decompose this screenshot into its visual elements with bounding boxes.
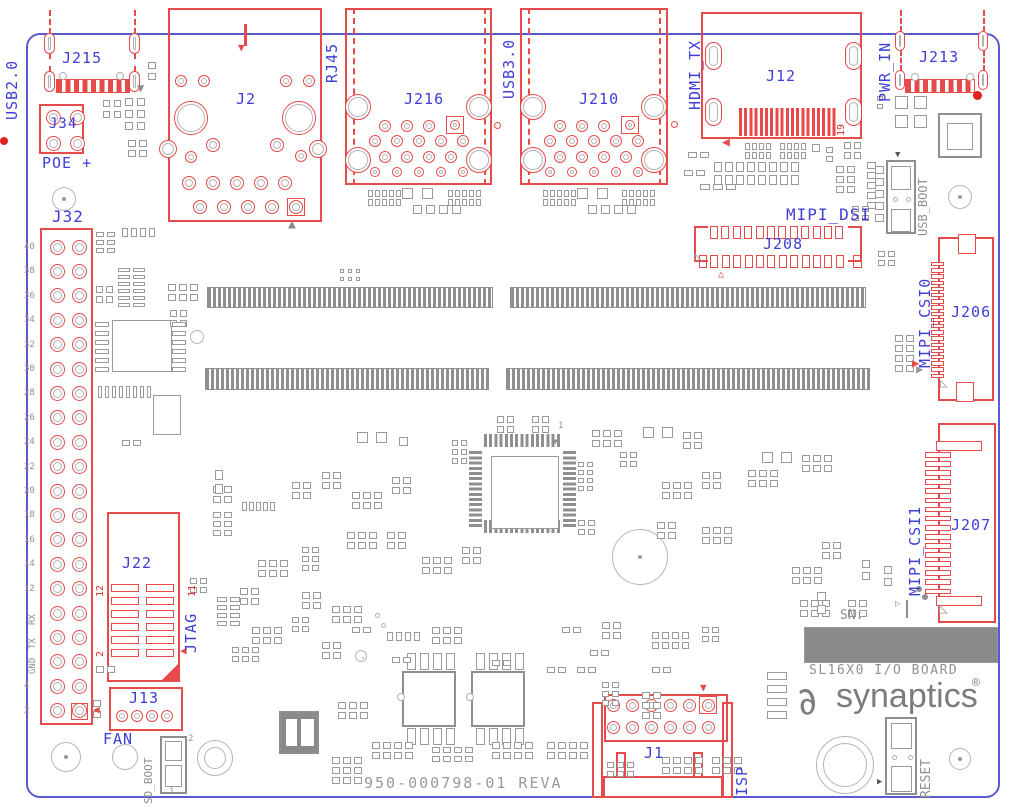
component-footprint bbox=[251, 598, 259, 605]
component-footprint bbox=[333, 482, 341, 489]
j207-pad bbox=[925, 461, 951, 467]
pad-circle bbox=[445, 151, 457, 163]
component-footprint bbox=[252, 647, 259, 653]
component-footprint bbox=[543, 199, 548, 206]
component-footprint bbox=[503, 742, 511, 749]
pad-circle bbox=[50, 654, 65, 669]
component-footprint bbox=[895, 96, 908, 109]
ring bbox=[908, 755, 913, 760]
component-footprint bbox=[578, 470, 584, 475]
component-footprint bbox=[368, 199, 373, 206]
component-footprint bbox=[587, 486, 593, 491]
connector-edge-dashed bbox=[900, 10, 902, 32]
component-footprint bbox=[302, 592, 310, 599]
soic8-chip bbox=[402, 671, 456, 727]
component-footprint bbox=[389, 190, 394, 197]
port-label-jtag: JTAG bbox=[182, 599, 200, 653]
component-footprint bbox=[578, 520, 585, 526]
component-footprint bbox=[895, 345, 903, 352]
component-footprint bbox=[232, 647, 239, 653]
component-footprint bbox=[914, 115, 927, 128]
component-footprint bbox=[333, 642, 341, 649]
pad-circle bbox=[175, 75, 187, 87]
component-footprint bbox=[369, 532, 377, 539]
j207-pad bbox=[925, 543, 951, 549]
component-footprint bbox=[303, 482, 311, 489]
ref-label-j213: J213 bbox=[919, 48, 959, 66]
component-footprint bbox=[862, 572, 870, 580]
component-footprint bbox=[263, 627, 271, 634]
component-footprint bbox=[833, 552, 841, 559]
connector-j32-header[interactable] bbox=[40, 228, 93, 725]
component-footprint bbox=[602, 622, 610, 629]
j22-pad bbox=[111, 597, 139, 605]
component-footprint bbox=[240, 598, 248, 605]
component-footprint bbox=[322, 472, 330, 479]
j206-pad bbox=[931, 367, 944, 371]
component-footprint bbox=[557, 190, 562, 197]
component-footprint bbox=[694, 432, 702, 439]
component-footprint bbox=[340, 269, 344, 273]
component-footprint bbox=[888, 260, 895, 266]
component-footprint bbox=[332, 757, 340, 764]
j208-pad bbox=[710, 226, 718, 239]
component-footprint bbox=[251, 588, 259, 595]
component-footprint bbox=[302, 602, 310, 609]
component-footprint bbox=[854, 142, 861, 149]
component-footprint bbox=[405, 752, 413, 759]
component-footprint bbox=[747, 175, 755, 185]
component-footprint bbox=[137, 110, 145, 118]
component-footprint bbox=[343, 757, 351, 764]
pad-circle bbox=[626, 721, 639, 734]
component-footprint bbox=[597, 188, 608, 199]
component-footprint bbox=[752, 143, 757, 150]
pad-circle bbox=[345, 94, 371, 120]
red-ring bbox=[671, 121, 678, 128]
component-footprint bbox=[394, 752, 402, 759]
component-footprint bbox=[95, 322, 109, 327]
component-footprint bbox=[172, 340, 186, 345]
component-footprint bbox=[792, 577, 800, 584]
component-footprint bbox=[643, 190, 648, 197]
component-footprint bbox=[684, 767, 692, 774]
qfp-pads bbox=[469, 450, 482, 527]
pad-circle bbox=[206, 176, 220, 190]
component-footprint bbox=[602, 691, 609, 697]
component-footprint bbox=[454, 747, 462, 753]
component-footprint bbox=[432, 747, 440, 753]
component-footprint bbox=[780, 143, 785, 150]
component-footprint bbox=[462, 547, 470, 554]
component-footprint bbox=[614, 205, 623, 214]
pad-circle bbox=[545, 167, 555, 177]
component-footprint bbox=[383, 742, 391, 749]
qfp-chip-body bbox=[491, 456, 559, 529]
pad-circle bbox=[566, 135, 578, 147]
pad-circle bbox=[50, 240, 65, 255]
component-footprint bbox=[770, 480, 778, 487]
pad-circle bbox=[379, 151, 391, 163]
j32-pin-label: 26 bbox=[24, 413, 35, 423]
component-footprint bbox=[354, 777, 362, 784]
component-footprint bbox=[801, 152, 806, 159]
component-footprint bbox=[878, 260, 885, 266]
component-footprint bbox=[322, 652, 330, 659]
component-footprint bbox=[452, 458, 458, 464]
component-footprint bbox=[745, 143, 750, 150]
pad-circle bbox=[161, 710, 173, 722]
component-footprint bbox=[200, 587, 207, 593]
j208-pad bbox=[802, 255, 810, 268]
component-footprint bbox=[302, 565, 309, 571]
j207-pad bbox=[925, 498, 951, 504]
pad-circle bbox=[625, 120, 635, 130]
marker-icon: ◀ bbox=[722, 136, 730, 149]
j32-pin-label: 32 bbox=[24, 340, 35, 350]
component-footprint bbox=[673, 482, 681, 489]
component-footprint bbox=[139, 150, 147, 157]
connector-edge-dashed bbox=[900, 50, 902, 71]
component-footprint bbox=[313, 592, 321, 599]
component-footprint bbox=[557, 199, 562, 206]
component-footprint bbox=[713, 537, 721, 544]
component-footprint bbox=[492, 742, 500, 749]
j208-pad bbox=[835, 226, 843, 239]
board-part-number: 950-000798-01 REVA bbox=[364, 774, 563, 792]
j213-pin-row bbox=[905, 79, 975, 93]
component-footprint bbox=[128, 140, 136, 147]
component-footprint bbox=[433, 557, 441, 564]
component-footprint bbox=[139, 140, 147, 147]
j207-pad bbox=[925, 488, 951, 494]
component-footprint bbox=[118, 289, 130, 293]
component-footprint bbox=[759, 143, 764, 150]
pad-circle bbox=[50, 703, 65, 718]
component-footprint bbox=[454, 637, 462, 644]
component-footprint bbox=[392, 477, 400, 484]
component-footprint bbox=[602, 632, 610, 639]
marker-icon: ▲ bbox=[288, 218, 296, 231]
component-footprint bbox=[803, 577, 811, 584]
component-footprint bbox=[332, 767, 340, 774]
j32-pin-label: RX bbox=[28, 603, 38, 625]
component-footprint bbox=[668, 532, 676, 539]
ref-label-j1: J1 bbox=[644, 744, 664, 762]
component-footprint bbox=[683, 432, 691, 439]
component-footprint bbox=[170, 310, 177, 317]
component-footprint bbox=[149, 228, 155, 237]
pcb-silkscreen-drawing: USB2.0 J215 J34 POE + J2 RJ45 J216 USB3.… bbox=[0, 0, 1024, 812]
j32-pin-label: 22 bbox=[24, 462, 35, 472]
pad-circle bbox=[401, 120, 413, 132]
component-footprint bbox=[107, 240, 115, 245]
component-footprint bbox=[392, 487, 400, 494]
ring bbox=[911, 73, 919, 81]
component-footprint bbox=[426, 205, 435, 214]
component-footprint bbox=[688, 152, 697, 158]
component-footprint bbox=[122, 228, 128, 237]
pad-circle bbox=[50, 484, 65, 499]
component-footprint bbox=[128, 150, 136, 157]
component-footprint bbox=[332, 606, 340, 613]
component-footprint bbox=[662, 767, 670, 774]
led-symbol: ▷ bbox=[895, 600, 900, 609]
component-footprint bbox=[769, 175, 777, 185]
j32-pin-label: 14 bbox=[24, 559, 35, 569]
component-footprint bbox=[643, 427, 654, 438]
ring bbox=[375, 613, 380, 618]
j207-pad bbox=[925, 525, 951, 531]
pad-circle bbox=[280, 75, 292, 87]
mounting-hole bbox=[949, 748, 971, 770]
component-footprint bbox=[398, 542, 406, 549]
component-footprint bbox=[629, 190, 634, 197]
soic-pin bbox=[433, 728, 442, 745]
j22-pad bbox=[146, 597, 174, 605]
component-footprint bbox=[862, 560, 870, 568]
j208-pad bbox=[744, 226, 752, 239]
component-footprint bbox=[847, 186, 855, 193]
component-footprint bbox=[213, 512, 221, 518]
pad-circle bbox=[185, 151, 197, 163]
component-footprint bbox=[603, 430, 611, 437]
pad-circle bbox=[50, 679, 65, 694]
pad-circle bbox=[379, 120, 391, 132]
oval-pad bbox=[129, 33, 140, 54]
component-footprint bbox=[712, 757, 720, 764]
component-footprint bbox=[461, 458, 467, 464]
component-footprint bbox=[263, 637, 271, 644]
component-footprint bbox=[413, 205, 422, 214]
component-footprint bbox=[340, 277, 344, 281]
port-label-fan: FAN bbox=[103, 730, 133, 748]
component-footprint bbox=[822, 552, 830, 559]
component-footprint bbox=[547, 667, 555, 673]
component-footprint bbox=[630, 461, 637, 467]
pad-circle bbox=[345, 147, 371, 173]
component-footprint bbox=[352, 627, 360, 633]
component-footprint bbox=[725, 162, 733, 172]
ring bbox=[966, 73, 974, 81]
component-footprint bbox=[822, 542, 830, 549]
pad-circle bbox=[72, 288, 87, 303]
component-footprint bbox=[684, 482, 692, 489]
component-footprint bbox=[133, 440, 141, 446]
j22-pad bbox=[146, 623, 174, 631]
component-footprint bbox=[507, 426, 514, 433]
ring bbox=[381, 623, 386, 628]
pad-circle bbox=[554, 151, 566, 163]
component-footprint bbox=[280, 570, 288, 577]
ref-label-j215: J215 bbox=[62, 49, 102, 67]
pad-circle bbox=[414, 167, 424, 177]
component-footprint bbox=[878, 251, 885, 257]
component-footprint bbox=[612, 691, 619, 697]
component-footprint bbox=[875, 202, 884, 210]
component-footprint bbox=[650, 190, 655, 197]
component-footprint bbox=[569, 752, 577, 759]
component-footprint bbox=[190, 284, 198, 291]
pad-circle bbox=[588, 135, 600, 147]
component-footprint bbox=[497, 426, 504, 433]
switch-label-reset: RESET bbox=[919, 738, 934, 798]
marker-icon: ▼ bbox=[137, 82, 144, 94]
component-footprint bbox=[723, 757, 731, 764]
pin-label-j22-2: 2 bbox=[95, 644, 106, 657]
component-footprint bbox=[578, 529, 585, 535]
pad-circle bbox=[369, 135, 381, 147]
j12-pin-row bbox=[739, 108, 837, 136]
component-footprint bbox=[662, 642, 669, 649]
component-footprint bbox=[96, 248, 104, 253]
component-footprint bbox=[497, 416, 504, 423]
pad-circle bbox=[645, 721, 658, 734]
pad-circle bbox=[50, 435, 65, 450]
component-footprint bbox=[180, 310, 187, 317]
component-footprint bbox=[617, 762, 624, 768]
component-footprint bbox=[672, 642, 679, 649]
component-footprint bbox=[662, 427, 673, 438]
pad-circle bbox=[72, 313, 87, 328]
pad-circle bbox=[436, 167, 446, 177]
component-footprint bbox=[215, 484, 223, 494]
component-footprint bbox=[369, 542, 377, 549]
component-footprint bbox=[758, 175, 766, 185]
pad-circle bbox=[458, 167, 468, 177]
component-footprint bbox=[532, 426, 539, 433]
component-footprint bbox=[673, 767, 681, 774]
pad-circle bbox=[303, 75, 315, 87]
component-footprint bbox=[826, 147, 833, 153]
component-footprint bbox=[240, 588, 248, 595]
component-footprint bbox=[403, 477, 411, 484]
component-footprint bbox=[343, 616, 351, 623]
component-footprint bbox=[444, 567, 452, 574]
pad-circle bbox=[633, 167, 643, 177]
port-label-rj45: RJ45 bbox=[323, 31, 341, 83]
pad-circle bbox=[265, 200, 279, 214]
component-footprint bbox=[382, 190, 387, 197]
pin-label-sd-1: 1 bbox=[169, 787, 174, 797]
j215-pin-row bbox=[56, 79, 130, 93]
component-footprint bbox=[224, 496, 232, 503]
connector-edge-dashed bbox=[134, 10, 136, 34]
component-footprint bbox=[627, 762, 634, 768]
component-footprint bbox=[356, 277, 360, 281]
component-footprint bbox=[767, 672, 787, 680]
component-footprint bbox=[492, 660, 500, 666]
j2-arrow-head: ▼ bbox=[238, 42, 245, 53]
component-footprint bbox=[348, 269, 352, 273]
component-footprint bbox=[118, 275, 130, 279]
component-footprint bbox=[578, 486, 584, 491]
component-footprint bbox=[147, 386, 151, 398]
pad-circle bbox=[567, 167, 577, 177]
component-footprint bbox=[725, 175, 733, 185]
component-footprint bbox=[292, 617, 299, 623]
soic-pin bbox=[420, 728, 429, 745]
serial-number-sticker bbox=[804, 627, 998, 663]
component-footprint bbox=[766, 152, 771, 159]
component-footprint bbox=[140, 228, 146, 237]
component-footprint bbox=[824, 455, 832, 462]
component-footprint bbox=[125, 98, 133, 106]
component-footprint bbox=[652, 642, 659, 649]
mounting-hole bbox=[197, 740, 233, 776]
component-footprint bbox=[700, 184, 710, 190]
ref-label-j12: J12 bbox=[766, 67, 796, 85]
component-footprint bbox=[578, 462, 584, 467]
j1-base bbox=[603, 776, 723, 798]
led-symbol bbox=[906, 600, 908, 618]
component-footprint bbox=[133, 386, 137, 398]
pad-circle bbox=[72, 703, 87, 718]
pad-circle bbox=[146, 710, 158, 722]
component-footprint bbox=[360, 712, 368, 719]
pad-circle bbox=[702, 699, 715, 712]
pin-label-j22-12: 12 bbox=[95, 577, 106, 597]
switch-cap bbox=[891, 766, 912, 792]
component-footprint bbox=[514, 742, 522, 749]
port-label-usb2: USB2.0 bbox=[3, 34, 21, 120]
component-footprint bbox=[443, 627, 451, 634]
component-footprint bbox=[112, 386, 116, 398]
component-footprint bbox=[662, 492, 670, 499]
component-footprint bbox=[714, 162, 722, 172]
component-footprint bbox=[358, 542, 366, 549]
component-footprint bbox=[252, 627, 260, 634]
j1-pin1-marker: ▼ bbox=[700, 682, 707, 693]
component-footprint bbox=[312, 547, 319, 553]
component-footprint bbox=[812, 144, 820, 152]
pad-circle bbox=[72, 410, 87, 425]
component-footprint bbox=[562, 627, 570, 633]
hatch-corner: ◺ bbox=[694, 250, 702, 263]
component-footprint bbox=[343, 767, 351, 774]
component-footprint bbox=[542, 416, 549, 423]
component-footprint bbox=[403, 657, 411, 663]
pad-circle bbox=[626, 699, 639, 712]
pad-circle bbox=[72, 386, 87, 401]
component-footprint bbox=[662, 482, 670, 489]
pad-circle bbox=[295, 150, 307, 162]
component-footprint bbox=[95, 349, 109, 354]
pad-circle bbox=[241, 200, 255, 214]
component-footprint bbox=[452, 205, 461, 214]
component-footprint bbox=[119, 386, 123, 398]
component-footprint bbox=[172, 349, 186, 354]
j1-leg bbox=[592, 702, 603, 798]
port-label-pwr: PWR_IN bbox=[876, 26, 894, 102]
component-footprint bbox=[354, 616, 362, 623]
component-footprint bbox=[462, 557, 470, 564]
component-footprint bbox=[461, 449, 467, 455]
component-footprint bbox=[433, 567, 441, 574]
component-footprint bbox=[642, 702, 650, 709]
component-footprint bbox=[577, 188, 588, 199]
component-footprint bbox=[292, 482, 300, 489]
component-footprint bbox=[766, 143, 771, 150]
port-label-isp: ISP bbox=[733, 750, 751, 796]
component-footprint bbox=[702, 537, 710, 544]
j208-pad bbox=[745, 255, 753, 268]
component-footprint bbox=[432, 637, 440, 644]
component-footprint bbox=[398, 532, 406, 539]
pin-label-sd-2: 2 bbox=[188, 734, 193, 744]
pad-circle bbox=[282, 101, 316, 135]
pad-circle bbox=[46, 136, 61, 151]
